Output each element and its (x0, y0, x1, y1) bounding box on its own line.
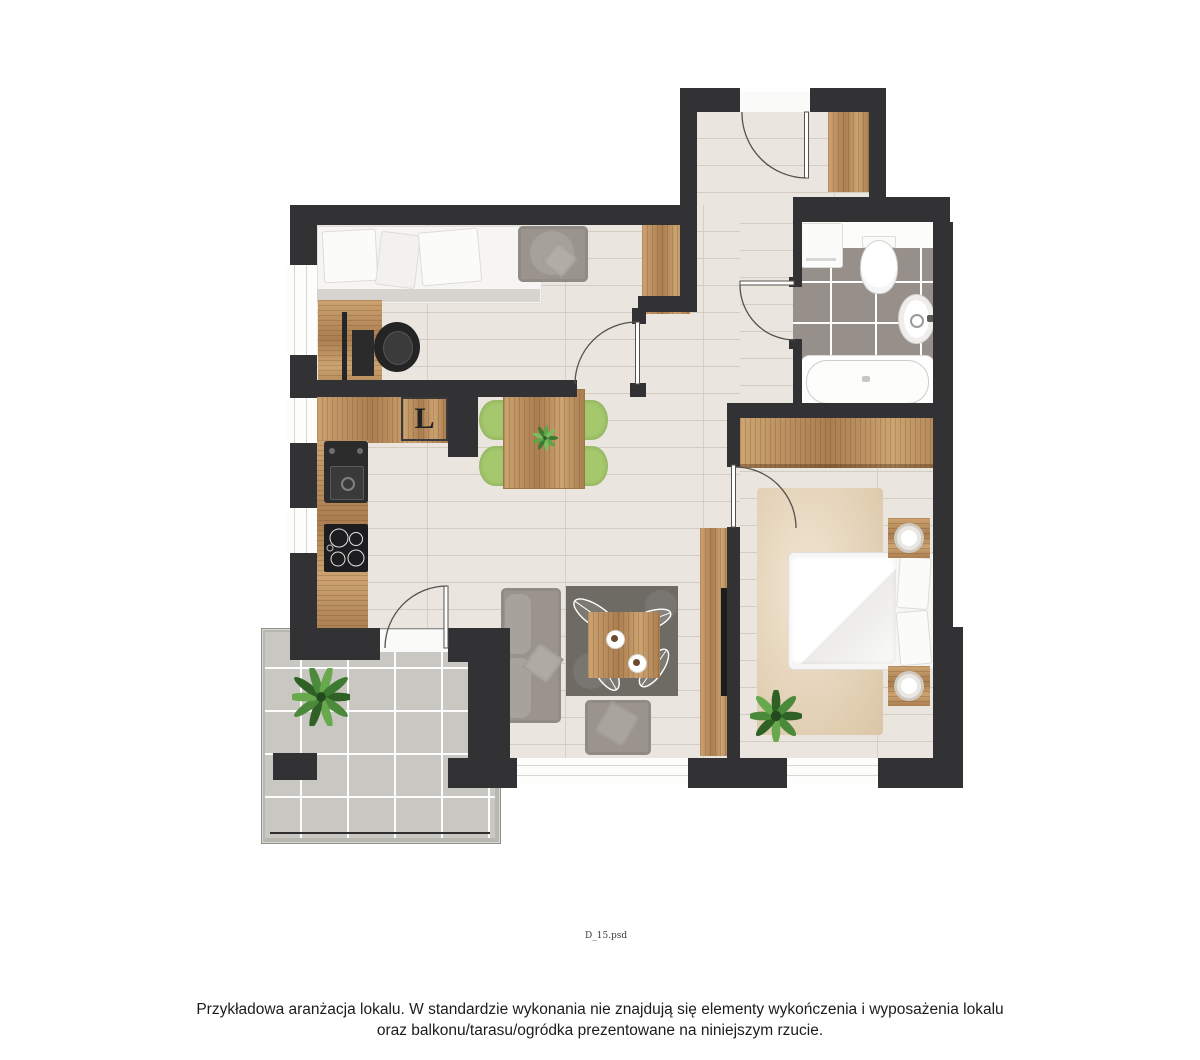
door-post (632, 308, 646, 324)
entrance-threshold (740, 92, 810, 112)
bathtub-drain (862, 376, 870, 382)
wall (727, 403, 740, 467)
window (286, 508, 317, 553)
wall (727, 403, 953, 418)
wall (727, 527, 740, 758)
coffee-cup-drink (633, 659, 640, 666)
bathtub-inner (806, 360, 929, 404)
disclaimer-line-2: oraz balkonu/tarasu/ogródka prezentowane… (0, 1020, 1200, 1041)
wall (448, 628, 510, 662)
disclaimer-line-1: Przykładowa aranżacja lokalu. W standard… (0, 999, 1200, 1020)
window (286, 265, 317, 355)
kitchen-cooktop (324, 524, 368, 572)
terrace-floor (265, 632, 495, 838)
toilet (860, 240, 898, 294)
sink-drain (341, 477, 355, 491)
washing-machine (801, 223, 843, 268)
bed-duvet (790, 556, 896, 664)
door-post (789, 277, 802, 287)
fridge-label: L (401, 397, 448, 441)
wall (290, 443, 317, 508)
bedroom-plant (750, 690, 802, 742)
office-chair-seat (383, 331, 413, 365)
wall (878, 758, 963, 788)
bed-pillow (896, 610, 933, 667)
bedroom-window (787, 758, 878, 785)
sink-drain (910, 314, 924, 328)
terrace-edge-line (270, 832, 490, 834)
wall (793, 222, 802, 285)
window (286, 398, 317, 443)
hall-wardrobe (828, 110, 869, 192)
dining-table-plant (531, 424, 559, 452)
daybed-duvet (375, 231, 421, 289)
disclaimer: Przykładowa aranżacja lokalu. W standard… (0, 999, 1200, 1041)
wall (680, 88, 697, 312)
coffee-cup-drink (611, 635, 618, 642)
desk-monitor (342, 312, 347, 380)
bedroom-wardrobe (740, 418, 953, 468)
wall (793, 343, 802, 403)
daybed-pillow (418, 227, 482, 286)
nightstand-lamp (897, 674, 921, 698)
wall (793, 197, 950, 222)
dining-chair (479, 400, 507, 440)
wall (933, 222, 953, 627)
coffee-table (588, 612, 660, 678)
sink-faucet-knob (329, 448, 335, 454)
wall (290, 628, 380, 660)
file-label: D_15.psd (585, 931, 627, 941)
wall (290, 380, 577, 397)
wall (448, 397, 478, 457)
desk-laptop (352, 330, 374, 376)
washing-machine-detail (806, 258, 836, 261)
wall (688, 758, 787, 788)
wall (869, 88, 886, 197)
sink-faucet-knob (357, 448, 363, 454)
wall (638, 296, 697, 312)
dining-chair (479, 446, 507, 486)
door-post (789, 339, 802, 349)
terrace-wall-block (273, 753, 317, 780)
daybed-pillow (322, 229, 379, 284)
living-room-window (517, 758, 688, 785)
door-post (630, 383, 646, 397)
wall (290, 553, 317, 630)
bed-pillow (896, 556, 932, 610)
wall (448, 758, 517, 788)
wall (290, 205, 697, 225)
terrace-plant (292, 668, 350, 726)
nightstand-lamp (897, 526, 921, 550)
floor-plan-page: L (0, 0, 1200, 1060)
terrace-door-threshold (380, 630, 448, 652)
